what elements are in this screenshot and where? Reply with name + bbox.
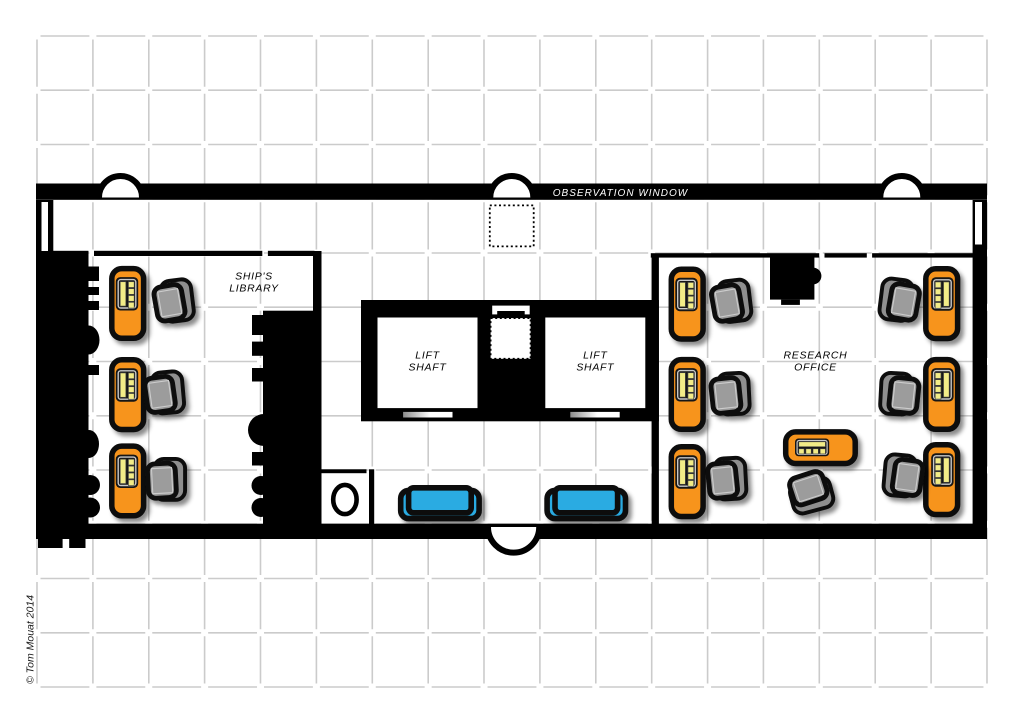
- svg-text:OFFICE: OFFICE: [794, 362, 837, 374]
- svg-text:SHIP'S: SHIP'S: [235, 271, 273, 283]
- svg-text:SHAFT: SHAFT: [409, 362, 448, 374]
- svg-text:SHAFT: SHAFT: [576, 362, 615, 374]
- svg-text:OBSERVATION WINDOW: OBSERVATION WINDOW: [553, 188, 689, 199]
- svg-text:RESEARCH: RESEARCH: [784, 350, 848, 362]
- svg-text:LIBRARY: LIBRARY: [229, 283, 279, 295]
- svg-text:LIFT: LIFT: [583, 350, 608, 362]
- svg-text:© Tom Mouat 2014: © Tom Mouat 2014: [25, 595, 37, 684]
- svg-text:LIFT: LIFT: [415, 350, 440, 362]
